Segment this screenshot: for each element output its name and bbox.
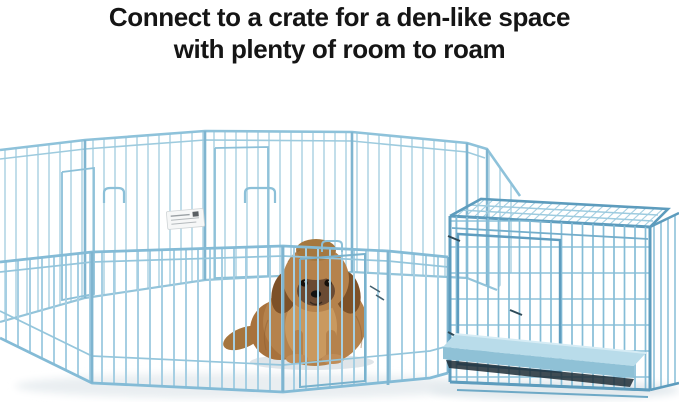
playpen-front-panels [0, 241, 448, 392]
scene-illustration [0, 0, 679, 402]
crate-illustration [443, 199, 679, 397]
product-tag [166, 208, 204, 229]
product-image: Connect to a crate for a den-like space … [0, 0, 679, 402]
